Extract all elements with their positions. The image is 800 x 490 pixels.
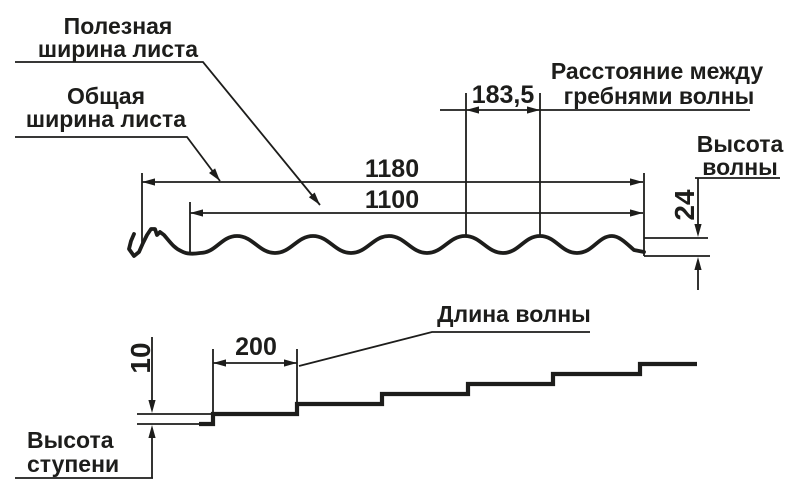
step-height-dimension: 10	[125, 337, 213, 478]
wave-length-leader-line	[299, 332, 590, 366]
overall-width-label: Общая ширина листа	[15, 83, 220, 181]
wave-height-arrow-down	[694, 224, 701, 237]
overall-width-value: 1180	[365, 155, 419, 183]
overall-width-leader-line	[15, 137, 220, 181]
metal-tile-profile-diagram: Полезная ширина листа Общая ширина листа…	[0, 0, 800, 490]
wave-length-arrow-right	[284, 359, 297, 366]
overall-width-leader-arrow	[209, 168, 220, 181]
step-height-label-line2: ступени	[27, 451, 119, 477]
wave-profile-section: Полезная ширина листа Общая ширина листа…	[15, 13, 783, 290]
wave-length-label: Длина волны	[299, 301, 591, 366]
crest-distance-label-line1: Расстояние между	[551, 58, 763, 84]
step-height-arrow-down	[148, 400, 155, 413]
step-height-label: Высота ступени	[15, 427, 153, 478]
wave-length-arrow-left	[213, 359, 226, 366]
useful-width-leader-line	[15, 62, 320, 205]
wave-profile-curve	[129, 229, 644, 256]
overall-width-label-line2: ширина листа	[26, 106, 186, 132]
wave-height-dimension: Высота волны 24	[644, 131, 783, 290]
wave-length-value: 200	[235, 333, 277, 361]
wave-length-label-text: Длина волны	[437, 301, 591, 327]
overall-width-arrow-right	[630, 178, 643, 185]
diagram-canvas: Полезная ширина листа Общая ширина листа…	[0, 0, 800, 490]
overall-width-arrow-left	[142, 178, 155, 185]
crest-distance-value: 183,5	[472, 81, 535, 109]
useful-width-dimension: 1100	[190, 173, 644, 256]
wave-height-value: 24	[669, 189, 700, 221]
step-height-label-line1: Высота	[27, 427, 114, 453]
useful-width-label-line2: ширина листа	[38, 36, 198, 62]
crest-distance-label-line2: гребнями волны	[564, 83, 755, 109]
wave-length-dimension: 200	[213, 333, 297, 414]
wave-height-label-line2: волны	[702, 154, 777, 180]
step-profile-curve	[199, 364, 697, 424]
useful-width-arrow-left	[190, 209, 203, 216]
step-profile-section: Длина волны 200 10 Высота ступени	[15, 301, 697, 478]
useful-width-arrow-right	[630, 209, 643, 216]
useful-width-value: 1100	[365, 186, 419, 214]
